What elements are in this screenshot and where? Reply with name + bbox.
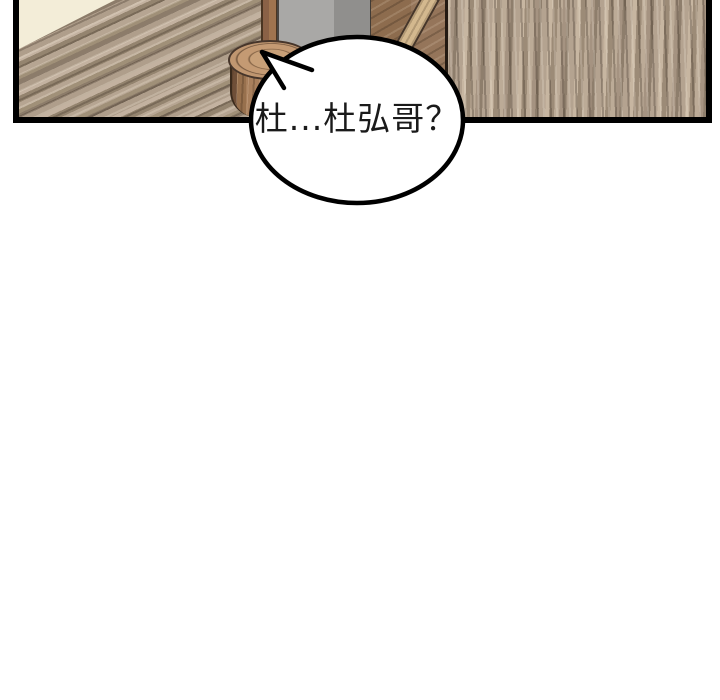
wood-floor-vertical (446, 0, 706, 117)
speech-bubble-text: 杜...杜弘哥？ (237, 100, 477, 138)
